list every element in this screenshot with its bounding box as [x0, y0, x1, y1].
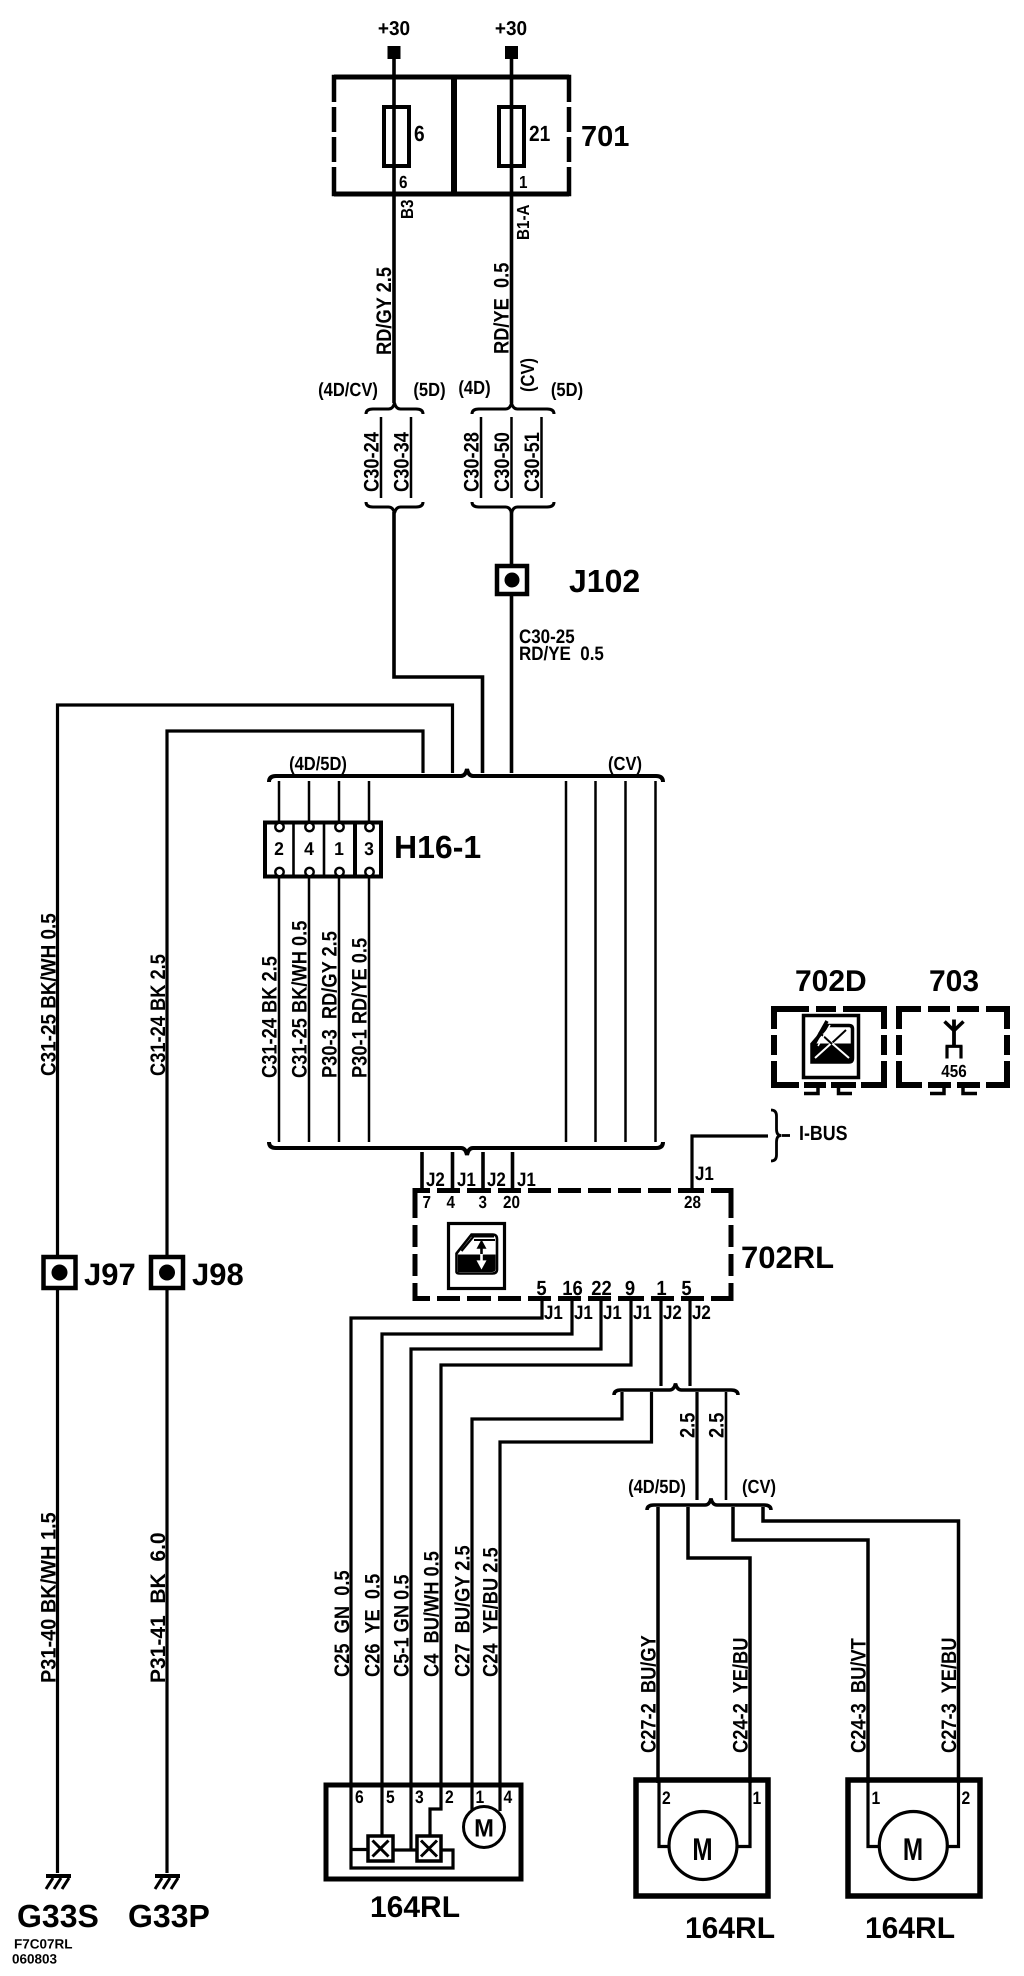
svg-text:B3: B3	[397, 199, 417, 219]
svg-text:C31-25 BK/WH 0.5: C31-25 BK/WH 0.5	[38, 913, 61, 1076]
svg-text:C24-3 BU/VT: C24-3 BU/VT	[848, 1638, 871, 1753]
svg-text:701: 701	[581, 121, 629, 153]
svg-text:4: 4	[304, 838, 314, 859]
svg-text:M: M	[474, 1815, 494, 1843]
svg-text:C30-28: C30-28	[461, 432, 484, 492]
svg-text:3: 3	[364, 838, 374, 859]
svg-text:C30-50: C30-50	[491, 432, 514, 492]
svg-text:4: 4	[447, 1192, 456, 1212]
svg-text:(CV): (CV)	[608, 754, 642, 775]
svg-text:C4 BU/WH 0.5: C4 BU/WH 0.5	[421, 1551, 444, 1677]
svg-text:3: 3	[479, 1192, 488, 1212]
svg-text:21: 21	[529, 121, 550, 146]
svg-text:G33P: G33P	[128, 1898, 210, 1934]
svg-text:+30: +30	[378, 18, 410, 40]
svg-text:+30: +30	[495, 18, 527, 40]
svg-text:J97: J97	[84, 1257, 136, 1292]
svg-text:(4D/5D): (4D/5D)	[628, 1477, 686, 1498]
svg-text:J2: J2	[692, 1302, 711, 1324]
svg-text:2: 2	[662, 1788, 671, 1808]
svg-text:J1: J1	[603, 1302, 622, 1324]
svg-text:456: 456	[941, 1061, 967, 1081]
svg-text:(5D): (5D)	[551, 380, 583, 401]
svg-text:M: M	[692, 1831, 712, 1867]
svg-text:6: 6	[414, 121, 425, 146]
svg-text:J98: J98	[192, 1257, 244, 1292]
svg-text:RD/GY 2.5: RD/GY 2.5	[373, 267, 396, 355]
svg-text:C24-2 YE/BU: C24-2 YE/BU	[730, 1638, 753, 1753]
svg-text:C26 YE 0.5: C26 YE 0.5	[362, 1573, 385, 1677]
svg-text:20: 20	[503, 1192, 520, 1212]
svg-text:703: 703	[929, 965, 979, 998]
svg-text:7: 7	[423, 1192, 431, 1212]
svg-text:F7C07RL: F7C07RL	[14, 1937, 73, 1952]
svg-text:2: 2	[962, 1788, 971, 1808]
svg-text:C30-34: C30-34	[391, 432, 414, 492]
svg-text:(4D/CV): (4D/CV)	[318, 380, 378, 401]
svg-text:(4D): (4D)	[458, 378, 490, 399]
svg-text:J1: J1	[574, 1302, 593, 1324]
svg-text:C24 YE/BU 2.5: C24 YE/BU 2.5	[480, 1547, 503, 1677]
svg-text:060803: 060803	[12, 1952, 58, 1967]
svg-text:C27-3 YE/BU: C27-3 YE/BU	[938, 1638, 961, 1753]
svg-text:B1-A: B1-A	[513, 204, 533, 240]
svg-text:2: 2	[445, 1787, 454, 1807]
svg-text:164RL: 164RL	[370, 1891, 460, 1924]
svg-text:M: M	[903, 1831, 923, 1867]
svg-text:C25 GN 0.5: C25 GN 0.5	[331, 1570, 354, 1677]
svg-text:C31-25 BK/WH 0.5: C31-25 BK/WH 0.5	[289, 920, 312, 1078]
svg-text:J1: J1	[695, 1163, 714, 1185]
svg-text:5: 5	[536, 1277, 546, 1300]
svg-text:4: 4	[504, 1787, 513, 1807]
svg-text:1: 1	[476, 1787, 485, 1807]
svg-text:P30-1 RD/YE 0.5: P30-1 RD/YE 0.5	[349, 938, 372, 1078]
svg-text:(5D): (5D)	[413, 380, 445, 401]
svg-text:J2: J2	[663, 1302, 682, 1324]
svg-text:C27 BU/GY 2.5: C27 BU/GY 2.5	[452, 1545, 475, 1677]
svg-text:(4D/5D): (4D/5D)	[289, 754, 347, 775]
svg-text:P31-41 BK 6.0: P31-41 BK 6.0	[147, 1532, 170, 1683]
svg-text:G33S: G33S	[17, 1898, 99, 1934]
svg-text:28: 28	[684, 1192, 701, 1212]
svg-text:702D: 702D	[795, 965, 867, 998]
svg-text:C5-1 GN 0.5: C5-1 GN 0.5	[391, 1574, 414, 1677]
svg-text:P31-40 BK/WH 1.5: P31-40 BK/WH 1.5	[38, 1512, 61, 1683]
svg-text:J102: J102	[569, 563, 640, 599]
svg-text:J1: J1	[544, 1302, 563, 1324]
svg-text:C31-24 BK 2.5: C31-24 BK 2.5	[259, 956, 282, 1078]
svg-text:6: 6	[399, 172, 408, 192]
svg-text:702RL: 702RL	[741, 1240, 834, 1275]
svg-text:16: 16	[562, 1277, 583, 1300]
svg-text:9: 9	[625, 1277, 635, 1300]
svg-text:1: 1	[753, 1788, 762, 1808]
svg-text:3: 3	[415, 1787, 424, 1807]
svg-text:2.5: 2.5	[706, 1412, 729, 1438]
svg-text:2.5: 2.5	[677, 1412, 700, 1438]
svg-text:P30-3 RD/GY 2.5: P30-3 RD/GY 2.5	[319, 931, 342, 1078]
svg-text:I-BUS: I-BUS	[799, 1122, 848, 1145]
svg-text:RD/YE 0.5: RD/YE 0.5	[491, 262, 514, 354]
svg-text:J1: J1	[633, 1302, 652, 1324]
svg-text:1: 1	[872, 1788, 881, 1808]
svg-text:C30-24: C30-24	[361, 432, 384, 492]
svg-text:RD/YE 0.5: RD/YE 0.5	[519, 643, 604, 665]
svg-text:164RL: 164RL	[685, 1912, 775, 1945]
svg-text:1: 1	[656, 1277, 666, 1300]
svg-text:(CV): (CV)	[518, 358, 539, 392]
svg-text:164RL: 164RL	[865, 1912, 955, 1945]
svg-text:C27-2 BU/GY: C27-2 BU/GY	[638, 1635, 661, 1753]
svg-text:2: 2	[274, 838, 284, 859]
svg-text:H16-1: H16-1	[394, 829, 481, 865]
svg-text:C31-24 BK 2.5: C31-24 BK 2.5	[147, 954, 170, 1076]
svg-text:(CV): (CV)	[742, 1477, 776, 1498]
svg-text:5: 5	[386, 1787, 395, 1807]
svg-text:1: 1	[519, 172, 528, 192]
svg-text:6: 6	[355, 1787, 364, 1807]
svg-text:22: 22	[591, 1277, 612, 1300]
svg-text:5: 5	[681, 1277, 691, 1300]
svg-text:C30-51: C30-51	[521, 432, 544, 492]
svg-text:1: 1	[334, 838, 344, 859]
